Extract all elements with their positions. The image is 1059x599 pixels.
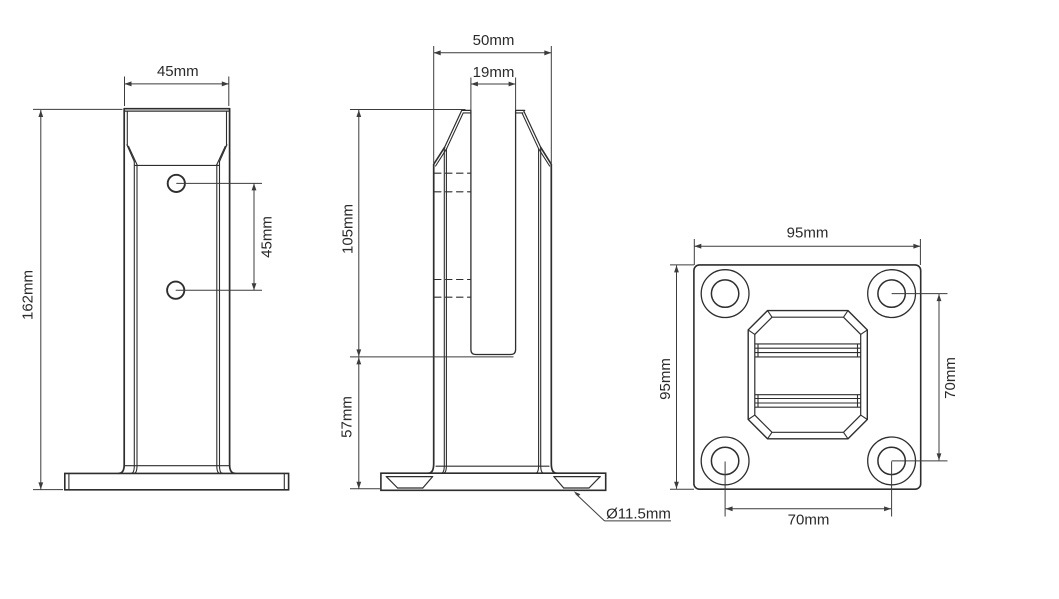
svg-text:45mm: 45mm [259,216,276,258]
svg-text:95mm: 95mm [787,225,829,242]
svg-text:162mm: 162mm [20,270,37,320]
svg-text:70mm: 70mm [942,357,959,399]
svg-text:105mm: 105mm [340,204,357,254]
svg-text:95mm: 95mm [657,358,674,400]
svg-text:70mm: 70mm [788,512,830,529]
svg-text:50mm: 50mm [473,32,515,49]
svg-text:19mm: 19mm [473,64,515,81]
svg-text:Ø11.5mm: Ø11.5mm [606,505,671,522]
svg-text:57mm: 57mm [339,396,356,438]
svg-text:45mm: 45mm [157,63,199,80]
